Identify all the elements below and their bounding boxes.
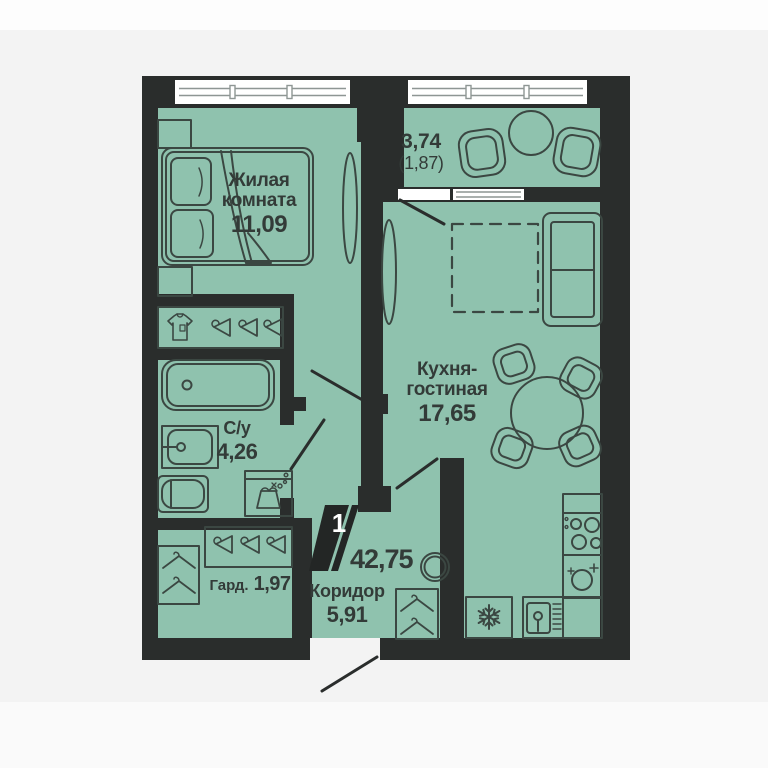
room-area: 5,91 — [309, 602, 384, 627]
window-icon — [453, 189, 524, 200]
balcony-label: 3,74 (1,87) — [398, 131, 443, 173]
room-area-coefficient: (1,87) — [398, 153, 443, 173]
door-swing-icon — [322, 657, 377, 691]
room-name: гостиная — [406, 380, 487, 400]
room-name: комната — [222, 191, 297, 211]
bathroom-label: С/у 4,26 — [217, 418, 258, 464]
corridor-label: Коридор 5,91 — [309, 581, 384, 627]
room-area: 1,97 — [254, 573, 291, 596]
room-name: С/у — [217, 418, 258, 439]
rooms-count-value: 1 — [332, 508, 346, 539]
room-name: Коридор — [309, 581, 384, 602]
room-area: 4,26 — [217, 439, 258, 464]
room-area: 11,09 — [222, 211, 297, 239]
living-room-label: Жилая комната 11,09 — [222, 171, 297, 239]
window-icon — [175, 80, 350, 104]
balcony-door-opening — [398, 189, 450, 200]
room-name: Кухня- — [406, 360, 487, 380]
room-area: 3,74 — [398, 131, 443, 153]
window-icon — [408, 80, 587, 104]
entrance-opening — [310, 638, 380, 662]
wardrobe-label: Гард. 1,97 — [206, 573, 294, 596]
room-name: Жилая — [222, 171, 297, 191]
room-area: 17,65 — [406, 400, 487, 428]
floor-plan-page: Жилая комната 11,09 3,74 (1,87) Кухня- г… — [0, 0, 768, 768]
room-name: Гард. — [209, 577, 248, 594]
kitchen-label: Кухня- гостиная 17,65 — [406, 360, 487, 428]
total-area-value: 42,75 — [350, 544, 413, 575]
floor-plan-drawing — [0, 0, 768, 768]
